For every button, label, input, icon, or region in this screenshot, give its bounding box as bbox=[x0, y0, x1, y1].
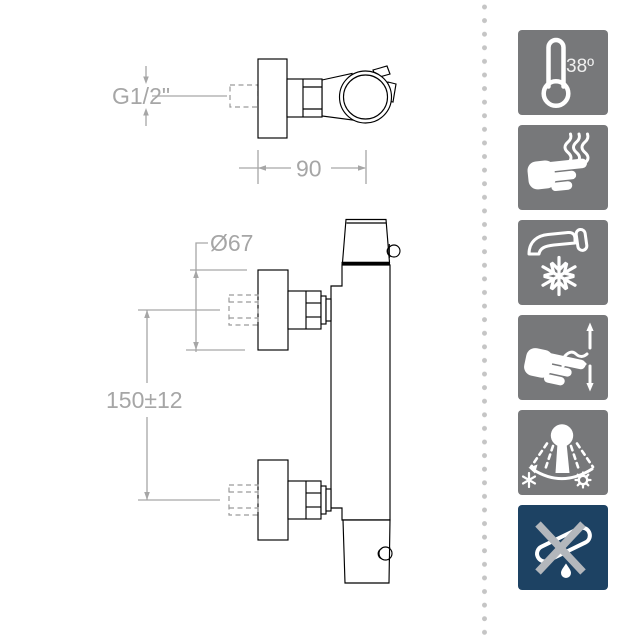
feature-tile-flow-control bbox=[518, 315, 608, 400]
shower-spray-icon bbox=[518, 410, 608, 495]
top-view-drawing: G1/2" 90 bbox=[112, 59, 396, 184]
width-dimension-label: 90 bbox=[296, 156, 322, 182]
faucet-snowflake-icon bbox=[518, 220, 608, 305]
product-spec-sheet: G1/2" 90 bbox=[0, 0, 643, 643]
gear-glyph bbox=[576, 473, 591, 488]
hand-heat-icon bbox=[518, 125, 608, 210]
temperature-value: 38º bbox=[566, 56, 594, 77]
diameter-dimension-label: Ø67 bbox=[210, 230, 253, 256]
feature-tile-max-temperature: 38º bbox=[518, 30, 608, 115]
front-view-drawing: Ø67 150±12 bbox=[106, 220, 400, 584]
feature-tile-cool-touch bbox=[518, 125, 608, 210]
feature-tile-cold-opening bbox=[518, 220, 608, 305]
crossed-spout-icon bbox=[518, 505, 608, 590]
thermometer-icon: 38º bbox=[518, 30, 608, 115]
feature-tile-spray-temperature bbox=[518, 410, 608, 495]
hand-flow-arrows-icon bbox=[518, 315, 608, 400]
spacing-dimension-label: 150±12 bbox=[106, 387, 183, 413]
dotted-divider bbox=[480, 2, 489, 642]
feature-tile-column: 38º bbox=[518, 30, 608, 600]
feature-tile-no-spout bbox=[518, 505, 608, 590]
